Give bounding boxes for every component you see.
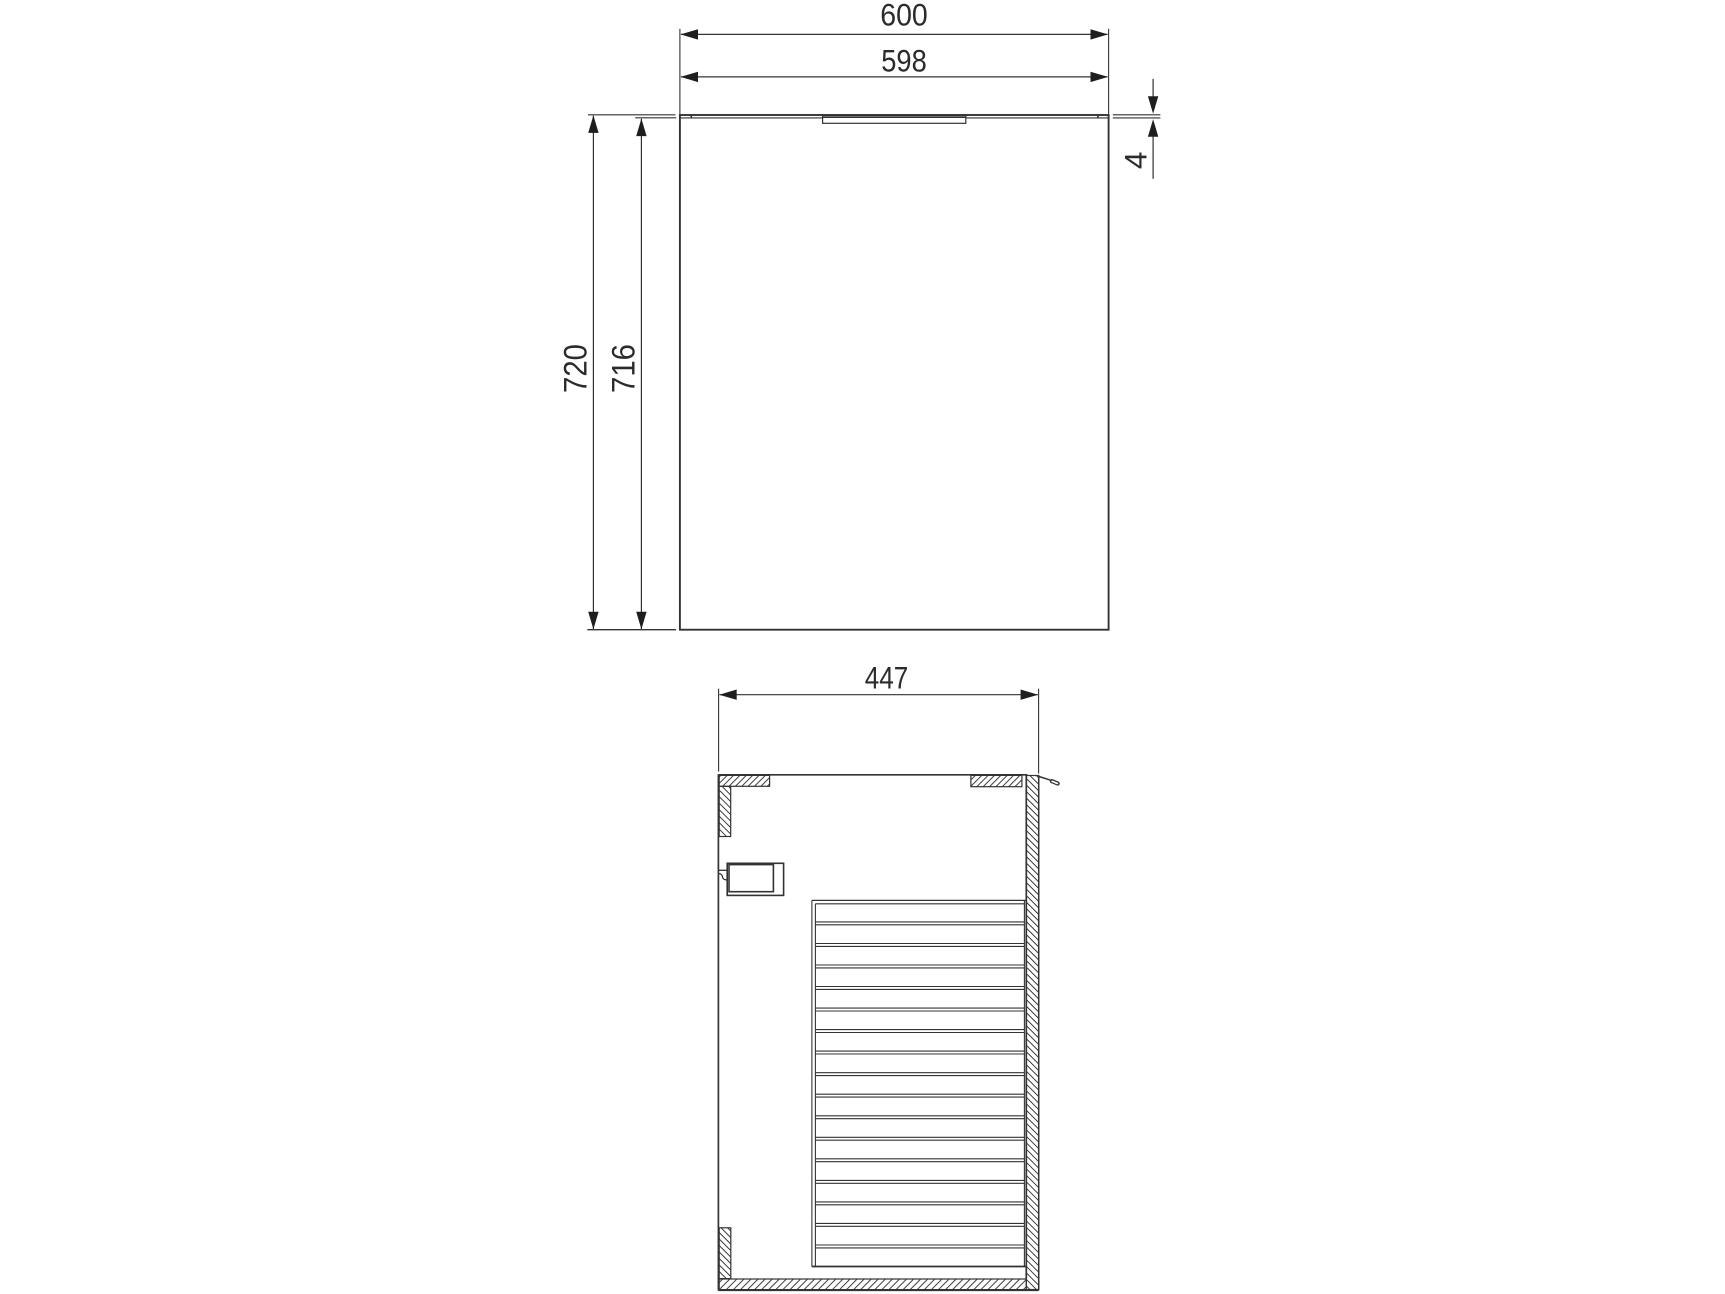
svg-text:716: 716	[606, 344, 642, 393]
svg-text:447: 447	[865, 659, 909, 695]
svg-text:600: 600	[880, 0, 928, 33]
svg-text:598: 598	[881, 43, 927, 79]
svg-text:4: 4	[1118, 152, 1154, 170]
svg-text:720: 720	[558, 344, 594, 393]
